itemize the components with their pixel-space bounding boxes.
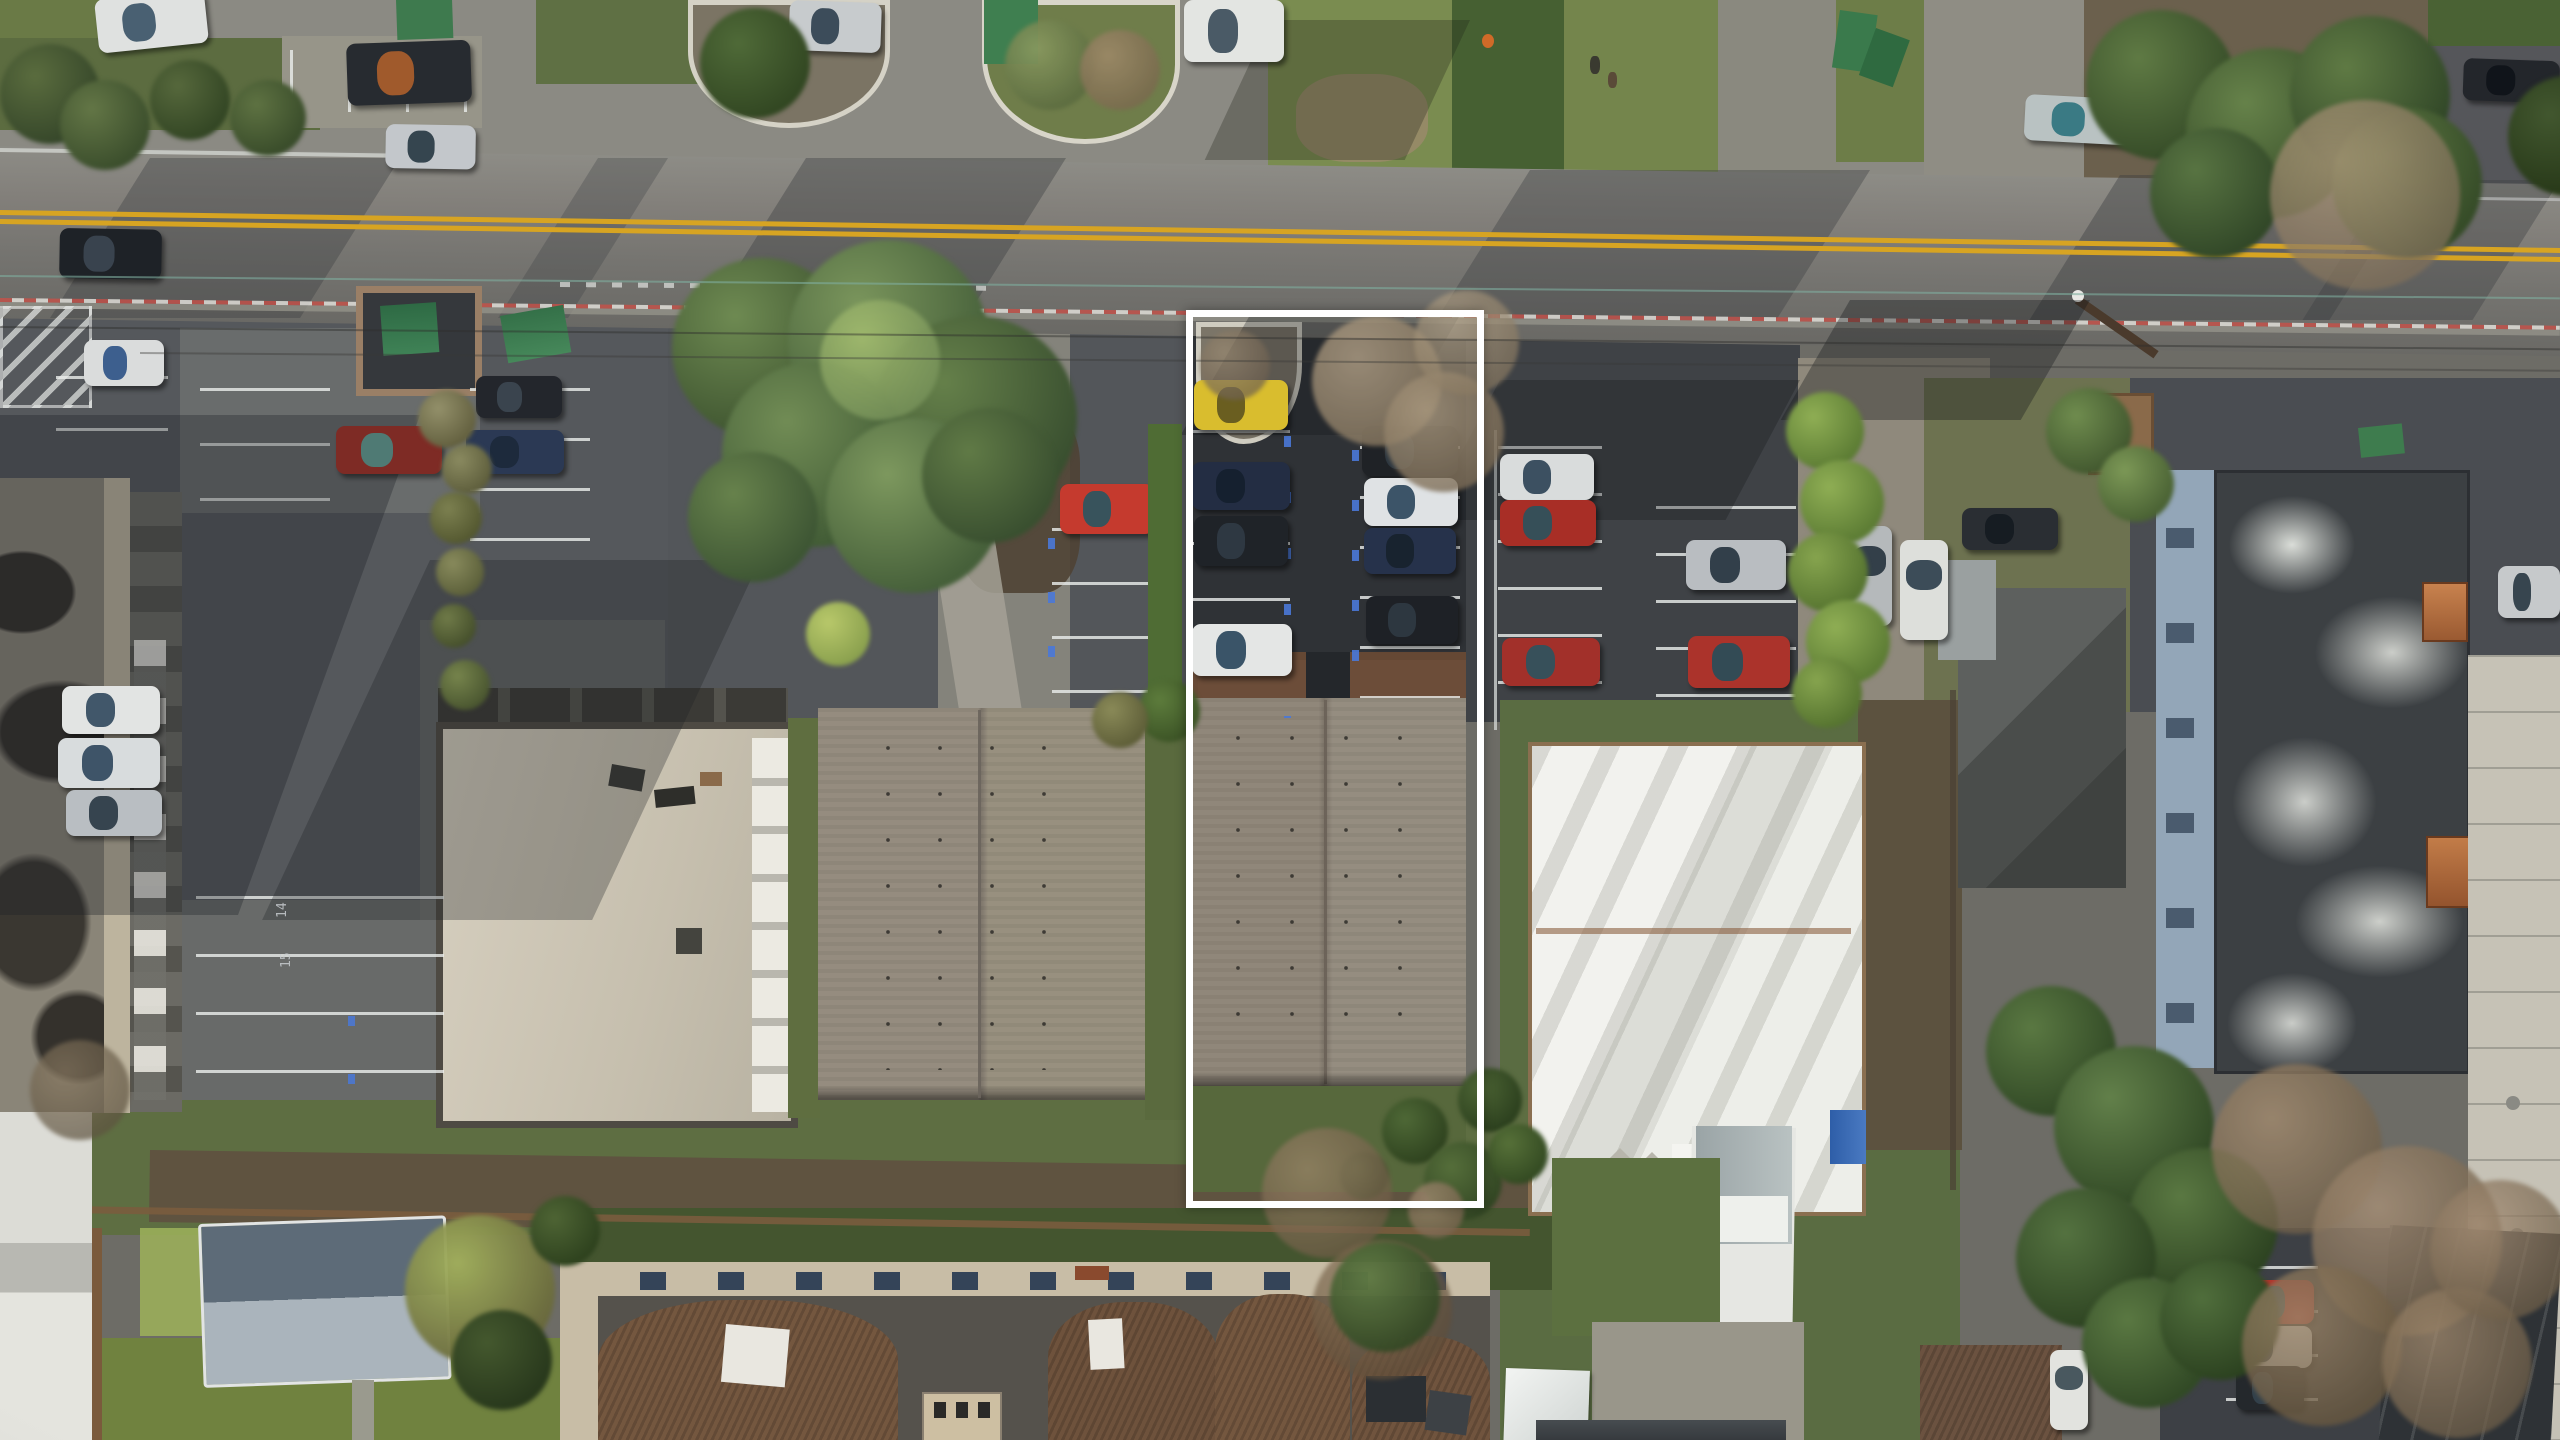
backyard-lawn xyxy=(1552,1158,1720,1336)
car-windshield xyxy=(1523,460,1551,493)
roof-clutter xyxy=(676,928,702,954)
van xyxy=(2050,1350,2088,1430)
car-windshield xyxy=(121,1,158,43)
car xyxy=(1686,540,1786,590)
bush-olive xyxy=(1092,692,1148,748)
bush xyxy=(700,8,810,118)
bush-olive xyxy=(430,492,482,544)
bush xyxy=(440,660,490,710)
tree-green xyxy=(1330,1242,1440,1352)
car-windshield xyxy=(1526,645,1555,680)
hedge-blob xyxy=(1800,460,1884,544)
bush-olive xyxy=(436,548,484,596)
orange-bucket xyxy=(1482,34,1494,48)
tower-vent xyxy=(978,1402,990,1418)
shrub xyxy=(452,1310,552,1410)
car-windshield xyxy=(1712,643,1743,680)
car-windshield xyxy=(376,50,415,96)
car xyxy=(1688,636,1790,688)
tower-vent xyxy=(956,1402,968,1418)
car-windshield xyxy=(1083,491,1111,527)
bush-olive xyxy=(442,444,492,494)
shrub xyxy=(530,1196,600,1266)
car xyxy=(1962,508,2058,550)
car xyxy=(385,124,476,170)
car xyxy=(1060,484,1154,534)
reserved-stencil-strip xyxy=(1048,538,1055,700)
car-windshield xyxy=(2055,1366,2084,1390)
car-windshield xyxy=(1985,514,2014,544)
tree-green xyxy=(2098,446,2174,522)
bush xyxy=(432,604,476,648)
car-windshield xyxy=(2513,573,2532,610)
car-windshield xyxy=(86,693,115,728)
blue-bins xyxy=(1830,1110,1866,1164)
parking-stall-lines xyxy=(196,896,444,1100)
brown-roof-house-bottom xyxy=(1920,1345,2062,1440)
car xyxy=(62,686,160,734)
hedge-blob xyxy=(1786,392,1864,470)
car-windshield xyxy=(1208,9,1238,54)
roof-vents xyxy=(880,740,1070,1070)
concrete-pads xyxy=(1924,0,2092,178)
car-windshield xyxy=(82,745,113,781)
rust-roof-patch xyxy=(1075,1266,1109,1280)
car-windshield xyxy=(84,235,115,272)
car-windshield xyxy=(497,382,523,412)
person xyxy=(1608,72,1617,88)
person xyxy=(1590,56,1600,74)
apartment-mottled-roof xyxy=(2214,470,2470,1074)
tower-vent xyxy=(934,1402,946,1418)
hvac-unit xyxy=(2426,836,2474,908)
car-windshield xyxy=(407,131,435,163)
vegetation xyxy=(150,60,230,140)
car-windshield xyxy=(1523,506,1552,539)
stall-number: 14 xyxy=(276,888,292,918)
conifer-tree xyxy=(688,452,818,582)
roof-clutter xyxy=(700,772,722,786)
car-windshield xyxy=(103,346,127,379)
car xyxy=(2498,566,2560,618)
car-windshield xyxy=(2051,102,2086,137)
bare-tree-mass xyxy=(2270,100,2460,290)
car-windshield xyxy=(361,433,393,468)
apartment-windows xyxy=(2166,490,2194,1050)
car xyxy=(58,738,160,788)
car-windshield xyxy=(2486,65,2516,96)
white-house-corner xyxy=(0,1112,92,1440)
bare-tree-mass xyxy=(2430,1180,2560,1320)
car xyxy=(1184,0,1284,62)
bare-tree-mass xyxy=(2242,1266,2402,1426)
minivan xyxy=(1900,540,1948,640)
car xyxy=(1500,500,1596,546)
stall-number: 15 xyxy=(280,938,296,968)
fence-vertical xyxy=(1950,690,1956,1190)
alley xyxy=(1718,0,1840,178)
green-dumpster xyxy=(396,0,453,40)
conifer-tree xyxy=(922,408,1057,543)
ridge-line xyxy=(978,710,981,1098)
car xyxy=(66,790,162,836)
car-windshield xyxy=(89,796,118,829)
garden-path xyxy=(352,1380,374,1440)
aerial-photo: 1415 xyxy=(0,0,2560,1440)
car-driving xyxy=(59,228,162,280)
condo-hip-brown xyxy=(1048,1302,1218,1440)
hedge-block xyxy=(1452,0,1572,178)
bush-olive xyxy=(418,390,476,448)
car xyxy=(476,376,562,418)
car-windshield xyxy=(490,436,519,468)
bare-tree-mass xyxy=(30,1040,130,1140)
green-dumpster xyxy=(2358,423,2405,457)
island-plants xyxy=(1080,30,1160,110)
vegetation xyxy=(60,80,150,170)
car xyxy=(84,340,164,386)
hip-white-patch xyxy=(721,1324,790,1387)
hip-white-patch xyxy=(1088,1318,1125,1370)
rust-seam xyxy=(1536,928,1851,934)
brush-strip xyxy=(1858,700,1962,1150)
bush xyxy=(806,602,870,666)
car-windshield xyxy=(1906,560,1943,590)
front-lawn xyxy=(1564,0,1726,172)
pickup-truck xyxy=(346,40,472,106)
hedge-top-right xyxy=(2428,0,2560,46)
car-windshield xyxy=(811,8,840,45)
grass-gap xyxy=(1145,700,1192,1120)
hvac-unit xyxy=(2422,582,2468,642)
tree-highlight xyxy=(820,300,940,420)
vegetation xyxy=(230,80,306,156)
property-boundary-overlay xyxy=(1186,310,1484,1208)
hedge-strip xyxy=(1148,424,1182,724)
shrub xyxy=(1488,1124,1548,1184)
dark-gable-sliver xyxy=(1536,1420,1786,1440)
white-wall-strip xyxy=(752,738,788,1112)
grass-gap xyxy=(788,718,820,1118)
yard-greenery xyxy=(536,0,706,84)
tree-green xyxy=(2150,128,2280,258)
roof-vent-round xyxy=(2506,1096,2520,1110)
car xyxy=(1500,454,1594,500)
reserved-stencil-strip xyxy=(348,1016,355,1100)
car-windshield xyxy=(1710,547,1740,583)
hedge-blob xyxy=(1792,658,1862,728)
car xyxy=(1502,638,1600,686)
trash-bins xyxy=(1366,1376,1426,1422)
eave-shadow xyxy=(818,1086,1145,1100)
trash-bins xyxy=(1424,1390,1471,1435)
